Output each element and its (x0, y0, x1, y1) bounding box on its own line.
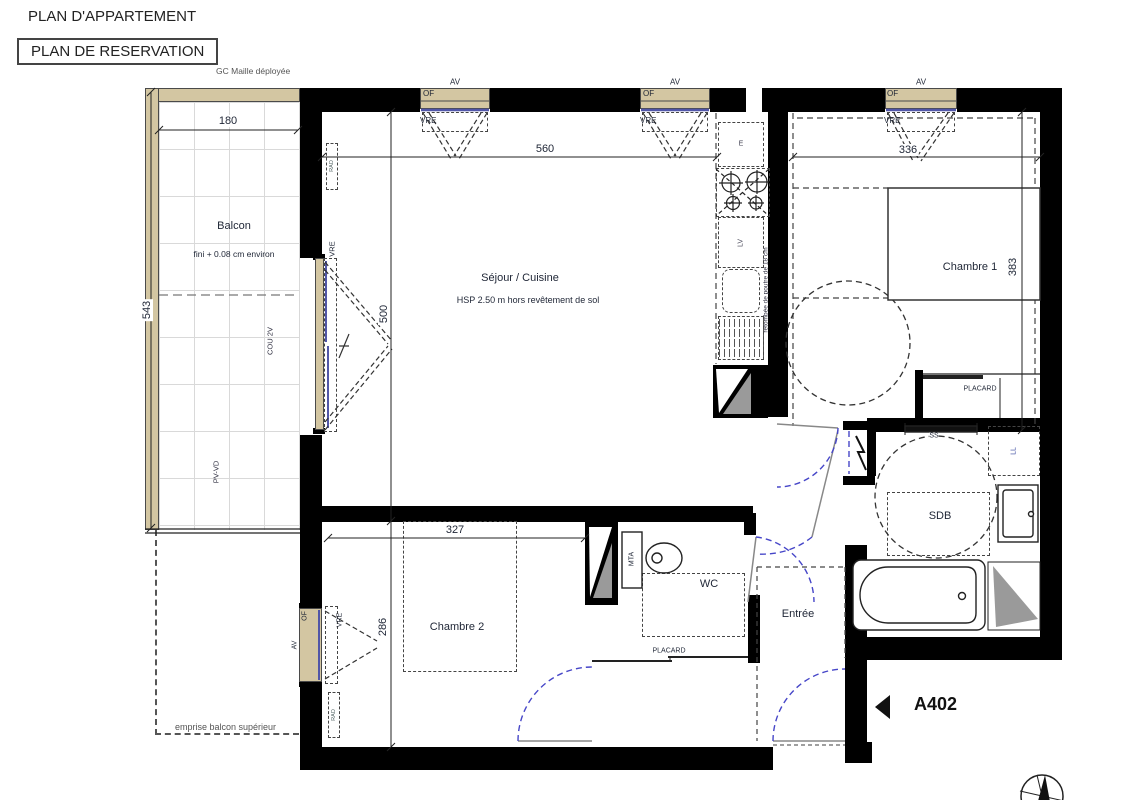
page-title: PLAN D'APPARTEMENT (28, 8, 196, 25)
room-label-chambre1: Chambre 1 (943, 261, 997, 273)
window-av-label: AV (450, 78, 460, 87)
wall-bottom (845, 742, 872, 763)
wall-top (957, 88, 1062, 112)
wall-right (1040, 112, 1062, 660)
window-of-label: OF (643, 89, 654, 98)
dim-living-depth: 500 (378, 303, 390, 325)
dim-bedroom2-depth: 286 (377, 616, 389, 638)
wc-zone (642, 573, 745, 637)
kitchen-dishwasher-label: LV (738, 239, 745, 247)
wc-duct-label: MTA (629, 552, 636, 566)
beam-note: retombée de poutre de 18 cm (763, 247, 770, 332)
bed-bedroom2 (403, 521, 517, 672)
dim-bedroom1-depth: 383 (1007, 256, 1019, 278)
construction-note: GC Maille déployée (216, 66, 290, 76)
window-vre-label: VRE (337, 613, 344, 627)
sdb-vanity-zone (887, 492, 990, 556)
wall-kitchen (768, 112, 788, 417)
room-label-wc: WC (698, 578, 720, 590)
compass-icon (1020, 775, 1064, 800)
wall-left (300, 682, 322, 747)
unit-marker (875, 695, 890, 719)
floor-plan: PLAN D'APPARTEMENT PLAN DE RESERVATION G… (0, 0, 1137, 800)
kitchen-sink (722, 269, 760, 313)
balcony-tile-grid (159, 102, 300, 530)
window-vre-label: VRE (884, 116, 900, 125)
closet-label-bedroom1: PLACARD (963, 386, 996, 393)
sliding-bay-label: COU 2V (266, 327, 275, 355)
upper-balcony-footprint (155, 530, 299, 735)
duct-wc (585, 521, 618, 605)
electrical-niche-top (843, 421, 875, 430)
room-label-chambre2: Chambre 2 (430, 621, 484, 633)
ceiling-height-note: HSP 2.50 m hors revêtement de sol (457, 295, 599, 305)
dim-balcony-width: 180 (217, 115, 239, 127)
wall-top (300, 88, 420, 112)
window-vre-label: VRE (420, 116, 436, 125)
dim-balcony-depth: 543 (141, 299, 153, 321)
wall-wc-east-pillar (744, 513, 756, 535)
window-vre-label: VRE (640, 116, 656, 125)
sliding-bay-living (315, 258, 324, 430)
kitchen-cooktop-box (716, 168, 770, 217)
duct-kitchen (713, 365, 768, 418)
window-av-label: AV (916, 78, 926, 87)
window-of-label: OF (887, 89, 898, 98)
dim-bedroom1-width: 336 (897, 144, 919, 156)
window-of-label: OF (423, 89, 434, 98)
radiator-label: RAD (331, 709, 337, 721)
wall-entry-step (845, 660, 867, 742)
dim-bedroom2-width: 327 (444, 524, 466, 536)
washing-machine-label: LL (1011, 447, 1018, 455)
wall-left (300, 112, 322, 258)
room-label-entree: Entrée (780, 608, 816, 620)
window-of-label: OF (302, 611, 309, 621)
wall-top (490, 88, 640, 112)
wall-bottom (300, 747, 773, 770)
window-vre-label: VRE (328, 241, 337, 256)
closet-label-wc: PLACARD (652, 648, 685, 655)
wall-sejour-bedroom2 (322, 506, 753, 522)
balcony-finish-note: fini + 0.08 cm environ (193, 249, 274, 259)
dim-living-width: 560 (534, 143, 556, 155)
window-cap (299, 682, 322, 687)
wall-placard1 (915, 370, 923, 418)
wall-left (300, 435, 322, 608)
upper-balcony-note: emprise balcon supérieur (172, 722, 279, 732)
radiator-label: RAD (329, 160, 335, 172)
towel-rail-label: SS (929, 433, 938, 440)
wall-bottom-right (845, 637, 1062, 660)
room-label-sdb: SDB (927, 510, 954, 522)
unit-number: A402 (914, 694, 957, 715)
electrical-niche-right (867, 430, 876, 476)
kitchen-drainer (718, 316, 764, 360)
wall-sdb-entry (845, 545, 867, 637)
plan-type-box: PLAN DE RESERVATION (17, 38, 218, 65)
electrical-niche-bottom (843, 476, 875, 485)
wall-wc-east (748, 595, 760, 663)
room-label-sejour: Séjour / Cuisine (481, 272, 559, 284)
kitchen-hood-label: E (739, 141, 744, 148)
wall-top (762, 88, 885, 112)
rail-label: PV-VD (212, 461, 221, 484)
window-av-label: AV (292, 641, 299, 650)
wall-top (710, 88, 746, 112)
vre-zone (324, 258, 337, 432)
balcony-slab-top (158, 88, 300, 102)
window-av-label: AV (670, 78, 680, 87)
room-label-balcon: Balcon (217, 220, 251, 232)
